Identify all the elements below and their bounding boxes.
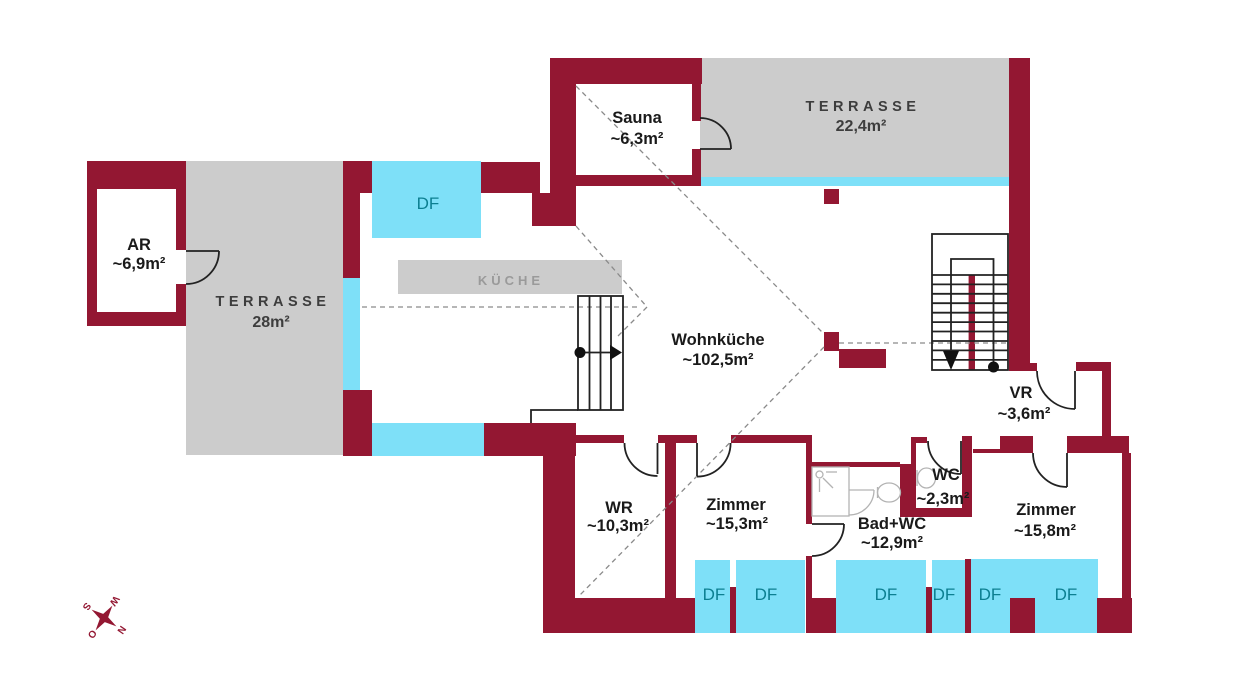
svg-text:~3,6m²: ~3,6m² [998,405,1051,423]
svg-text:DF: DF [979,585,1002,604]
svg-text:TERRASSE: TERRASSE [806,99,921,115]
svg-text:Sauna: Sauna [612,109,662,127]
svg-text:DF: DF [703,585,726,604]
svg-text:~102,5m²: ~102,5m² [682,351,754,369]
svg-text:Wohnküche: Wohnküche [671,331,764,349]
svg-text:DF: DF [1055,585,1078,604]
svg-text:22,4m²: 22,4m² [836,118,887,135]
svg-text:DF: DF [875,585,898,604]
svg-text:~10,3m²: ~10,3m² [587,517,649,535]
svg-text:WC: WC [932,466,960,484]
svg-text:~6,3m²: ~6,3m² [611,130,664,148]
svg-text:TERRASSE: TERRASSE [216,294,331,310]
svg-text:~6,9m²: ~6,9m² [113,255,166,273]
svg-text:~2,3m²: ~2,3m² [917,490,970,508]
svg-text:~12,9m²: ~12,9m² [861,534,923,552]
svg-text:Zimmer: Zimmer [706,496,766,514]
svg-text:AR: AR [127,236,151,254]
svg-text:Zimmer: Zimmer [1016,501,1076,519]
svg-text:DF: DF [933,585,956,604]
svg-text:DF: DF [417,194,440,213]
svg-text:28m²: 28m² [252,314,289,331]
svg-text:DF: DF [755,585,778,604]
svg-text:KÜCHE: KÜCHE [478,273,544,288]
svg-text:~15,8m²: ~15,8m² [1014,522,1076,540]
svg-text:Bad+WC: Bad+WC [858,515,926,533]
svg-text:VR: VR [1010,384,1033,402]
svg-text:WR: WR [605,499,633,517]
svg-text:~15,3m²: ~15,3m² [706,515,768,533]
